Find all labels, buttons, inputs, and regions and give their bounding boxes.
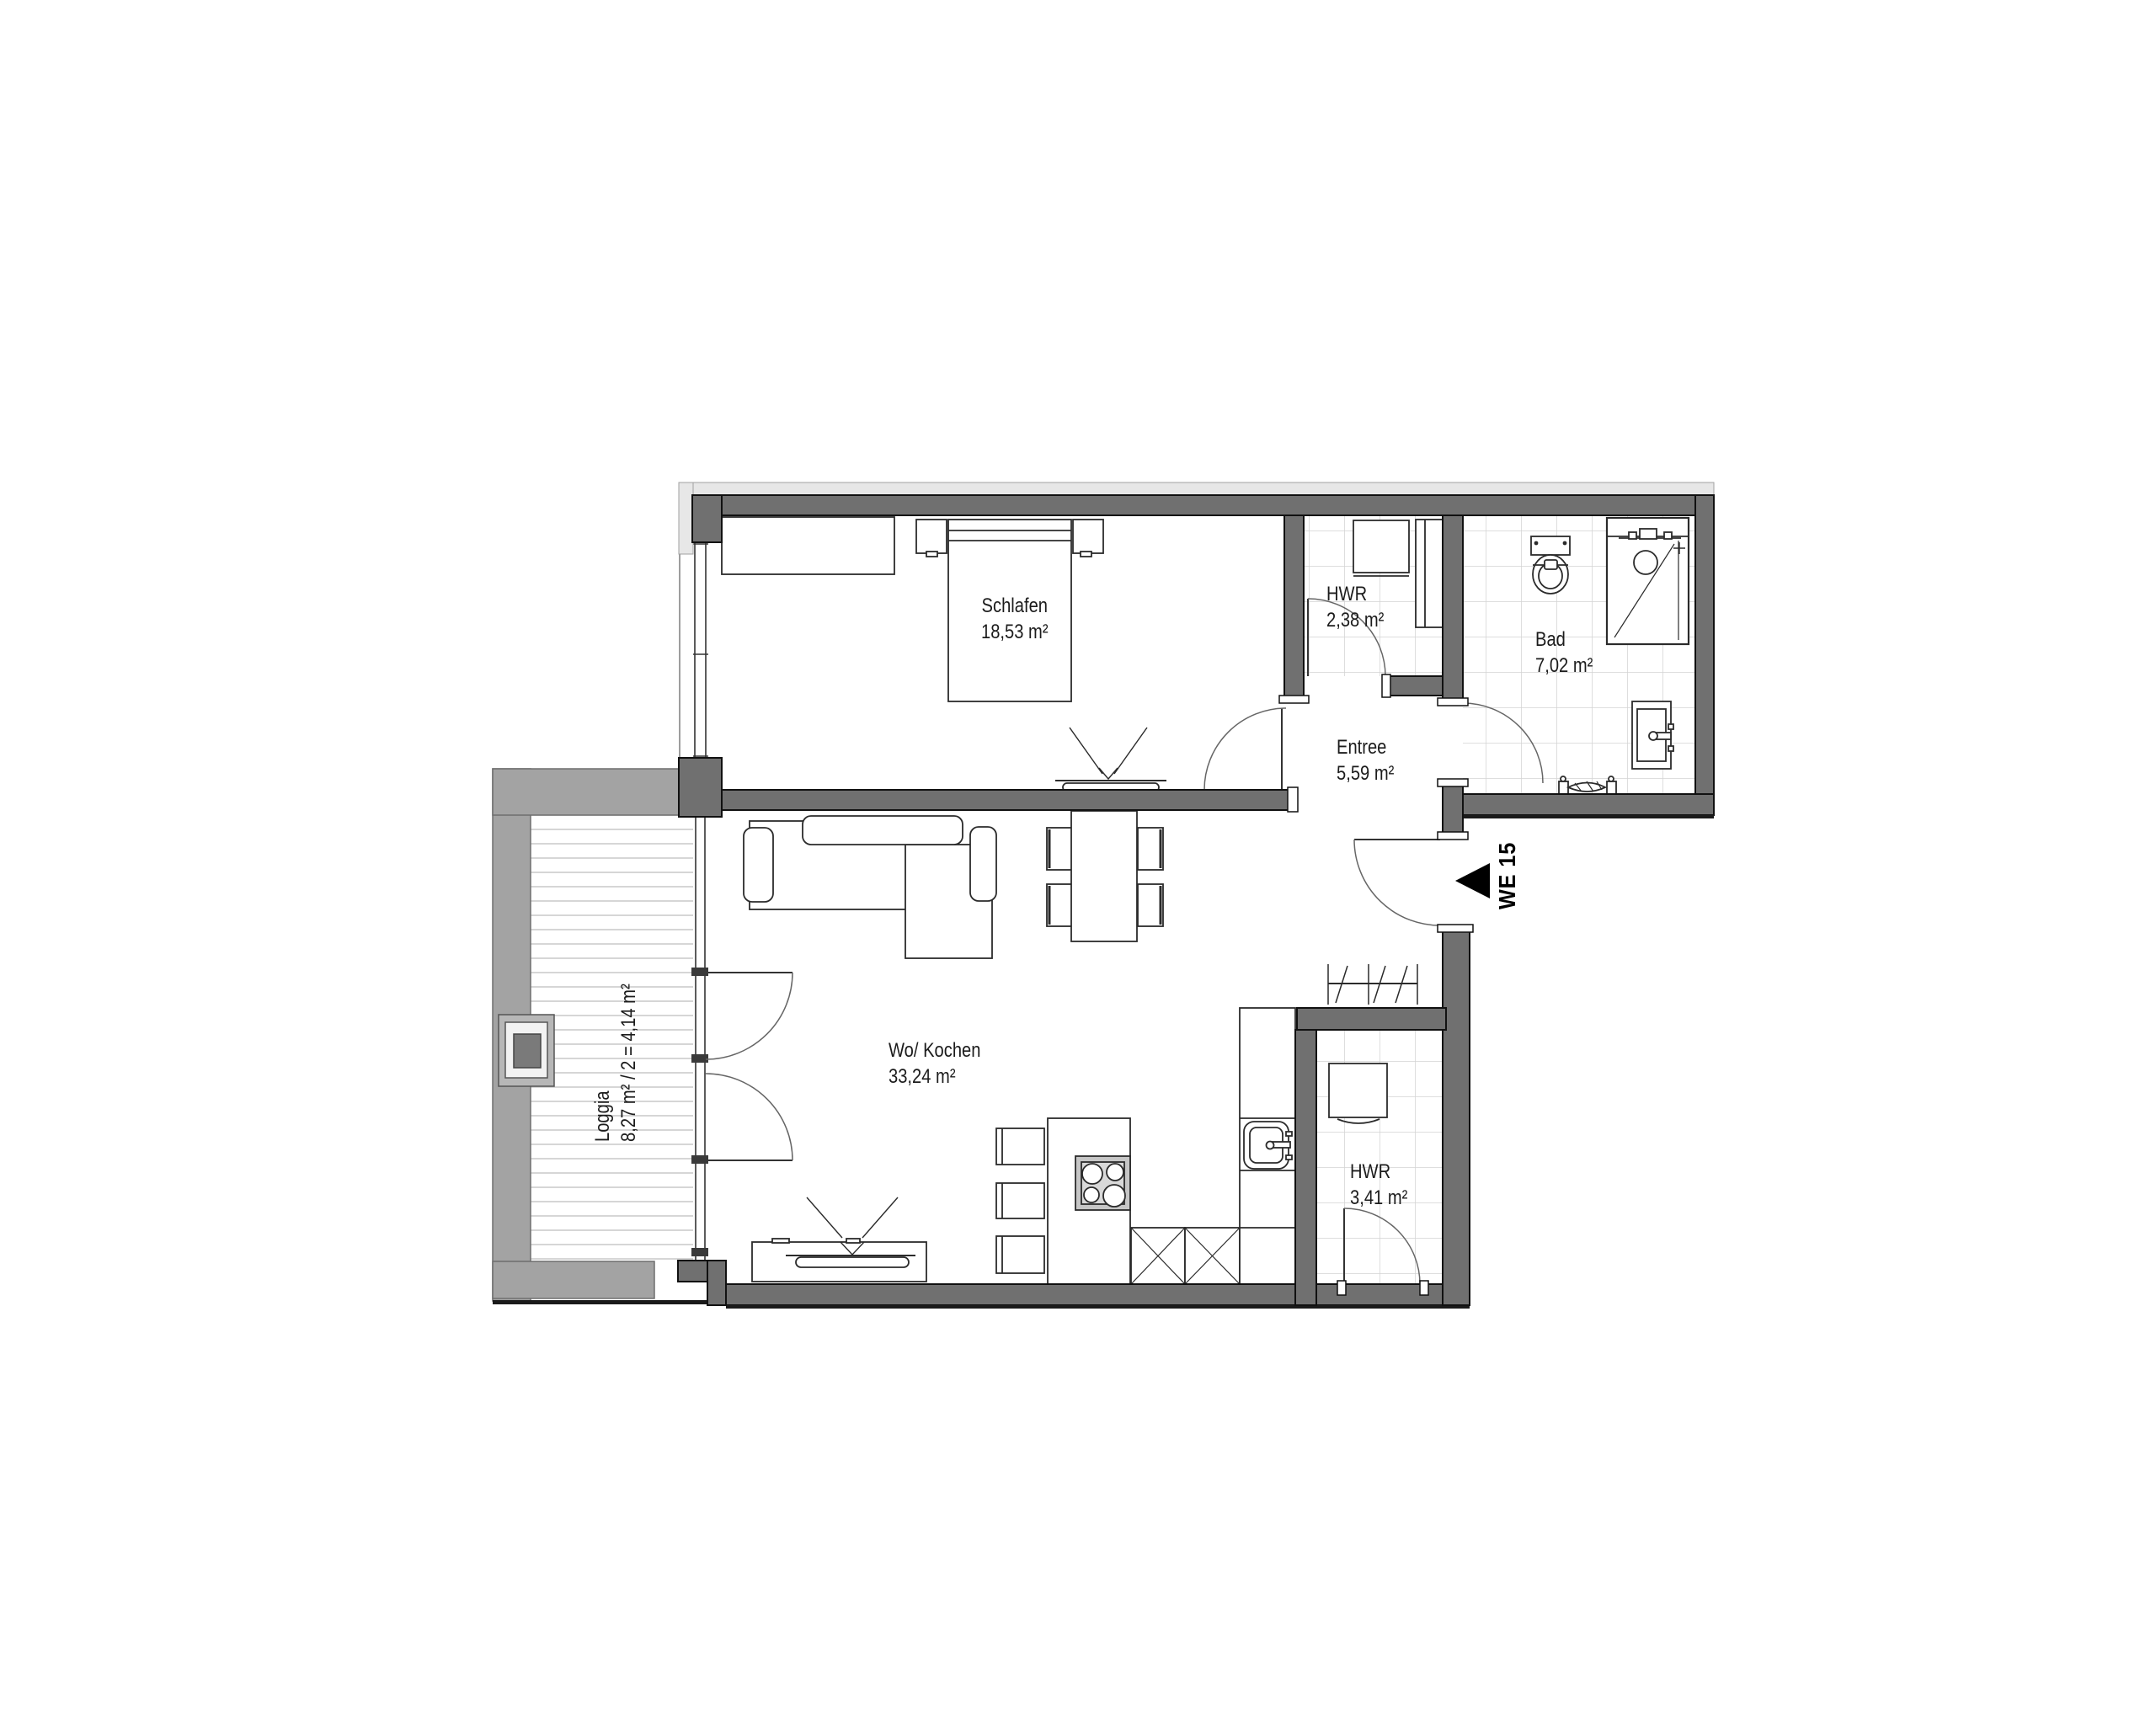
room-label-hwr-unten: HWR 3,41 m² (1350, 1159, 1407, 1211)
hwr-oben-shelf (1416, 520, 1443, 627)
door-swing (706, 1074, 792, 1160)
room-area: 7,02 m² (1535, 653, 1593, 679)
room-area: 5,59 m² (1337, 760, 1394, 786)
room-area: 18,53 m² (981, 619, 1049, 645)
nightstand-right (1073, 520, 1103, 553)
washing-machine (1329, 1064, 1387, 1117)
insulation-top (679, 482, 1714, 495)
loggia-wall-top (493, 769, 679, 815)
bar-stool (996, 1128, 1044, 1165)
wall-hwr-unten-top (1297, 1008, 1446, 1030)
tv-wohnen (796, 1257, 909, 1267)
mullion (691, 1155, 708, 1164)
room-label-wo-kochen: Wo/ Kochen 33,24 m² (889, 1037, 980, 1090)
wall-schlafen-bottom (722, 790, 1294, 810)
entrance-marker (1455, 863, 1490, 898)
wall-right-lower (1443, 929, 1470, 1305)
dining-table (1071, 811, 1137, 941)
mullion (691, 1054, 708, 1063)
wall-right (1695, 495, 1714, 815)
bar-stool (996, 1236, 1044, 1273)
room-label-hwr-oben: HWR 2,38 m² (1326, 581, 1384, 633)
room-name: Loggia (590, 984, 616, 1142)
entrance-arrow-icon (1455, 863, 1490, 898)
room-name: Schlafen (981, 593, 1049, 619)
tv-view-line (1070, 728, 1102, 774)
loggia-french-doors (706, 973, 792, 1160)
wall-corner-left (692, 495, 722, 542)
wall-top (707, 495, 1714, 515)
burner (1103, 1185, 1125, 1207)
wall-loggia-junction-bottom (678, 1261, 707, 1282)
burner (1084, 1187, 1099, 1202)
entrance-door-swing (1354, 840, 1443, 925)
room-name: HWR (1326, 581, 1384, 607)
loggia-wall-bottom (493, 1261, 654, 1298)
room-label-entree: Entree 5,59 m² (1337, 734, 1394, 786)
sofa-side-cushion (970, 827, 996, 901)
room-area: 2,38 m² (1326, 607, 1384, 633)
wall-hwr-oben-bottom (1388, 676, 1443, 696)
coat-rack (1328, 964, 1417, 1005)
bar-stool (996, 1183, 1044, 1218)
wall-loggia-junction-top (679, 758, 722, 817)
wall-kitchen-hwr (1295, 1030, 1316, 1305)
room-name: HWR (1350, 1159, 1407, 1185)
burner (1082, 1164, 1102, 1184)
sofa-back-cushion (803, 816, 963, 845)
nightstand-left (916, 520, 947, 553)
wardrobe (722, 517, 894, 574)
wall-hwr-bad (1443, 515, 1463, 703)
room-label-bad: Bad 7,02 m² (1535, 626, 1593, 679)
burner (1107, 1164, 1123, 1181)
room-label-loggia: Loggia 8,27 m² / 2 = 4,14 m² (590, 984, 642, 1142)
tv-view-line (807, 1197, 842, 1238)
schlafen-furniture (722, 517, 1166, 792)
tv-view-line (862, 1197, 898, 1238)
unit-number-label: WE 15 (1494, 842, 1521, 909)
insulation-left (679, 482, 693, 554)
toilet-tank (1531, 536, 1570, 555)
mullion (691, 968, 708, 976)
room-name: Bad (1535, 626, 1593, 653)
hwr-oben-cabinet (1353, 520, 1409, 573)
tv-view-line (1114, 728, 1147, 774)
wall-bad-bottom (1463, 794, 1714, 815)
room-name: Entree (1337, 734, 1394, 760)
room-area: 3,41 m² (1350, 1185, 1407, 1211)
room-area: 8,27 m² / 2 = 4,14 m² (616, 984, 642, 1142)
room-area: 33,24 m² (889, 1064, 980, 1090)
floor-plan-drawing (0, 0, 2156, 1722)
floor-plan-canvas: Schlafen 18,53 m² HWR 2,38 m² Bad 7,02 m… (0, 0, 2156, 1722)
wall-entree-stub (1443, 783, 1463, 836)
radiator-bracket (1607, 781, 1616, 794)
radiator-bracket (1559, 781, 1568, 794)
room-label-schlafen: Schlafen 18,53 m² (981, 593, 1049, 645)
shower-head (1634, 551, 1657, 574)
room-name: Wo/ Kochen (889, 1037, 980, 1064)
door-swing (706, 973, 792, 1059)
kitchen (996, 1008, 1295, 1284)
wall-schlafen-hwr (1284, 515, 1304, 701)
sofa-armrest (744, 828, 773, 902)
wall-bottom (726, 1284, 1470, 1305)
mullion (691, 1248, 708, 1256)
schlafen-door-swing (1204, 708, 1286, 790)
